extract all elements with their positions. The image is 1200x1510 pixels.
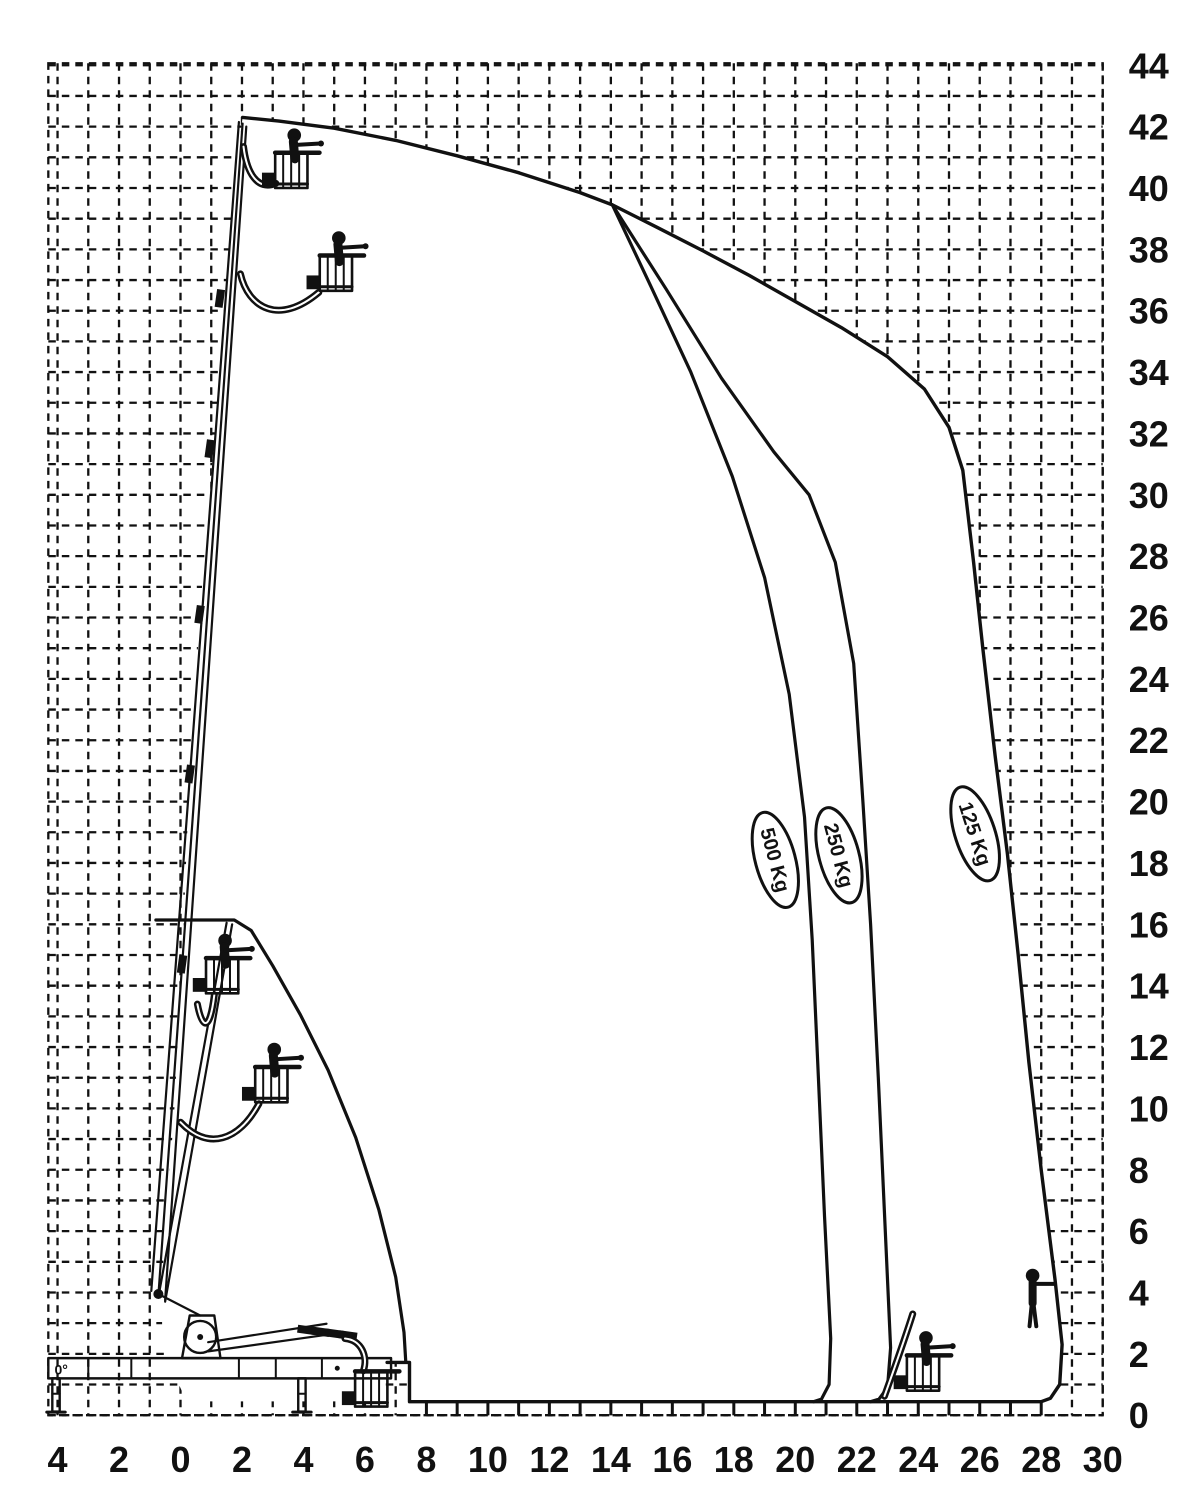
x-tick-label: 10	[468, 1439, 508, 1480]
y-tick-label: 22	[1129, 720, 1169, 761]
y-tick-label: 14	[1129, 966, 1169, 1007]
x-tick-label: 12	[529, 1439, 569, 1480]
x-tick-label: 16	[652, 1439, 692, 1480]
y-tick-label: 4	[1129, 1272, 1149, 1313]
x-tick-label: 24	[898, 1439, 938, 1480]
x-tick-label: 4	[48, 1439, 68, 1480]
y-tick-label: 42	[1129, 107, 1169, 148]
y-tick-label: 0	[1129, 1395, 1149, 1436]
x-tick-label: 18	[714, 1439, 754, 1480]
x-tick-label: 4	[293, 1439, 313, 1480]
x-tick-label: 30	[1083, 1439, 1123, 1480]
x-tick-label: 26	[960, 1439, 1000, 1480]
x-tick-label: 6	[355, 1439, 375, 1480]
y-tick-label: 2	[1129, 1334, 1149, 1375]
y-tick-label: 10	[1129, 1088, 1169, 1129]
x-tick-label: 22	[837, 1439, 877, 1480]
y-tick-label: 36	[1129, 291, 1169, 332]
y-tick-label: 38	[1129, 229, 1169, 270]
working-range-load-chart: 500 Kg250 Kg125 Kg0°42024681012141618202…	[0, 0, 1200, 1510]
y-tick-label: 28	[1129, 536, 1169, 577]
x-tick-label: 8	[416, 1439, 436, 1480]
x-tick-label: 2	[232, 1439, 252, 1480]
y-tick-label: 24	[1129, 659, 1169, 700]
x-tick-label: 28	[1021, 1439, 1061, 1480]
y-tick-label: 18	[1129, 843, 1169, 884]
x-tick-label: 20	[775, 1439, 815, 1480]
y-tick-label: 40	[1129, 168, 1169, 209]
boom-angle-label: 0°	[54, 1361, 67, 1377]
y-tick-label: 30	[1129, 475, 1169, 516]
y-tick-label: 12	[1129, 1027, 1169, 1068]
x-tick-label: 2	[109, 1439, 129, 1480]
y-tick-label: 20	[1129, 782, 1169, 823]
y-tick-label: 34	[1129, 352, 1169, 393]
y-tick-label: 6	[1129, 1211, 1149, 1252]
y-tick-label: 8	[1129, 1150, 1149, 1191]
x-tick-label: 0	[170, 1439, 190, 1480]
floor-tick-marks	[426, 1402, 1041, 1415]
load-diagram-page: 500 Kg250 Kg125 Kg0°42024681012141618202…	[0, 0, 1200, 1510]
y-tick-label: 44	[1129, 45, 1169, 86]
x-tick-label: 14	[591, 1439, 631, 1480]
y-tick-label: 26	[1129, 598, 1169, 639]
y-tick-label: 32	[1129, 413, 1169, 454]
y-tick-label: 16	[1129, 904, 1169, 945]
